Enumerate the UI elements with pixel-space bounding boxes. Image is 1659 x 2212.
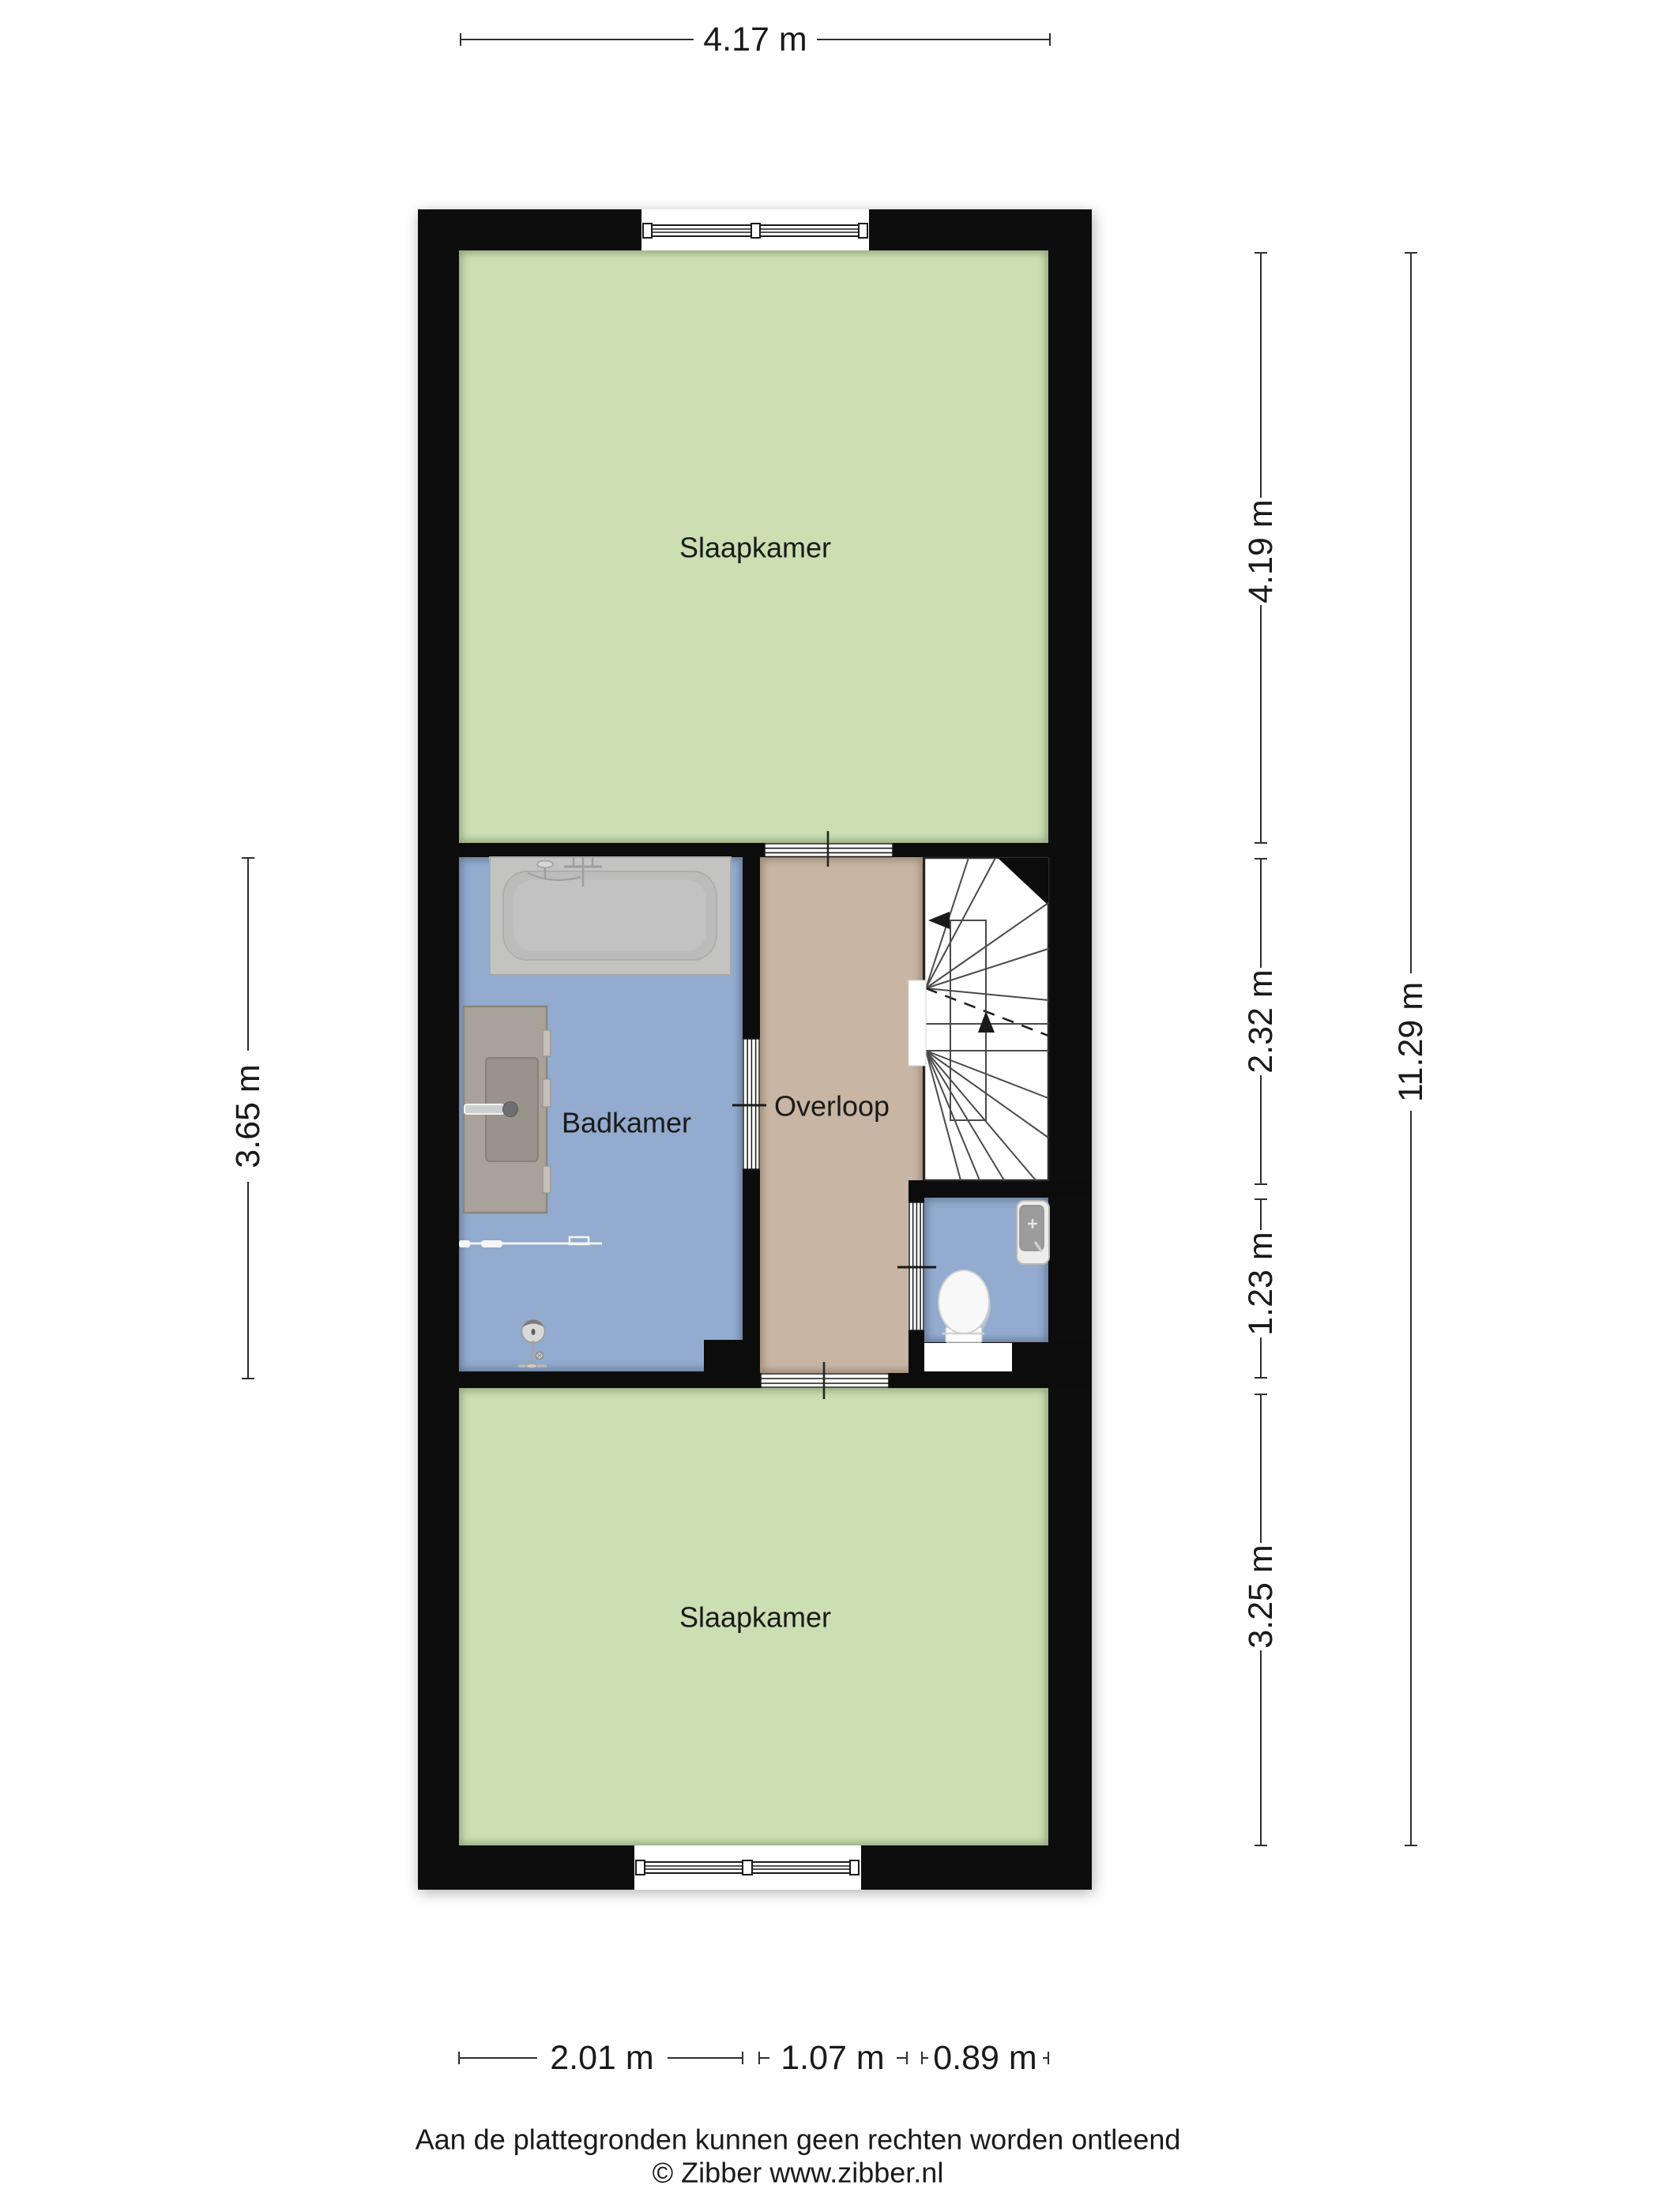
- svg-text:2.01 m: 2.01 m: [550, 2039, 653, 2077]
- svg-text:1.23 m: 1.23 m: [1242, 1232, 1280, 1335]
- svg-text:4.19 m: 4.19 m: [1242, 499, 1280, 603]
- svg-text:11.29 m: 11.29 m: [1392, 982, 1430, 1102]
- svg-text:Aan de plattegronden kunnen ge: Aan de plattegronden kunnen geen rechten…: [416, 2124, 1181, 2156]
- svg-text:2.32 m: 2.32 m: [1242, 969, 1280, 1073]
- svg-text:Overloop: Overloop: [774, 1090, 890, 1123]
- svg-text:1.07 m: 1.07 m: [781, 2039, 884, 2077]
- svg-text:Slaapkamer: Slaapkamer: [679, 532, 831, 564]
- svg-text:Badkamer: Badkamer: [562, 1107, 691, 1139]
- svg-text:3.25 m: 3.25 m: [1242, 1544, 1280, 1648]
- svg-text:4.17 m: 4.17 m: [703, 21, 807, 58]
- svg-text:0.89 m: 0.89 m: [933, 2039, 1036, 2077]
- svg-text:© Zibber www.zibber.nl: © Zibber www.zibber.nl: [653, 2157, 944, 2189]
- svg-text:3.65 m: 3.65 m: [229, 1064, 267, 1168]
- svg-text:Slaapkamer: Slaapkamer: [679, 1601, 831, 1634]
